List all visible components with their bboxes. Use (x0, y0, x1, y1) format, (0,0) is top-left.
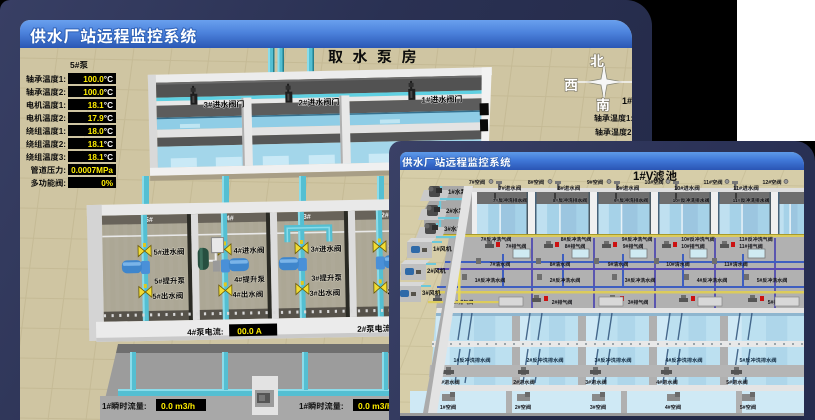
svg-text:7#: 7# (506, 244, 512, 250)
svg-text:2#: 2# (427, 269, 434, 275)
svg-text:10#: 10# (681, 237, 690, 243)
svg-text:1#: 1# (448, 190, 455, 196)
svg-text:4#: 4# (666, 358, 672, 364)
svg-text:2#: 2# (552, 300, 558, 306)
svg-text:11#: 11# (739, 244, 747, 250)
svg-text:2#: 2# (446, 209, 453, 215)
svg-text:7#: 7# (481, 237, 487, 243)
svg-text:10#: 10# (673, 198, 681, 204)
svg-text:4#: 4# (697, 278, 703, 284)
svg-text:7#: 7# (493, 198, 499, 204)
svg-text:11#: 11# (733, 186, 742, 192)
svg-text:9#: 9# (587, 180, 593, 186)
svg-text:7#: 7# (469, 180, 475, 186)
svg-text:10#: 10# (645, 180, 654, 186)
svg-text:1#: 1# (433, 247, 440, 253)
svg-text:9#: 9# (614, 198, 620, 204)
svg-text:8#: 8# (558, 186, 564, 192)
svg-text:9#: 9# (608, 262, 614, 268)
svg-text:3#: 3# (628, 300, 634, 306)
svg-text:4#: 4# (665, 405, 671, 411)
svg-text:9#: 9# (622, 237, 628, 243)
svg-text:1#: 1# (440, 405, 446, 411)
svg-text:5#: 5# (740, 358, 746, 364)
svg-text:11#: 11# (733, 198, 741, 204)
svg-text:3#: 3# (444, 227, 451, 233)
svg-text:11#: 11# (724, 262, 732, 268)
svg-text:11#: 11# (704, 180, 712, 186)
svg-text:7#: 7# (499, 186, 505, 192)
svg-text:2#: 2# (515, 405, 521, 411)
svg-text:3#: 3# (625, 278, 631, 284)
svg-text:9#: 9# (617, 186, 623, 192)
svg-text:10#: 10# (666, 262, 675, 268)
svg-text:8#: 8# (528, 180, 534, 186)
svg-text:8#: 8# (565, 244, 571, 250)
svg-text:11#: 11# (739, 237, 747, 243)
svg-text:3#: 3# (422, 291, 429, 297)
svg-text:7#: 7# (490, 262, 496, 268)
svg-text:12#: 12# (763, 180, 772, 186)
svg-text:1#: 1# (475, 278, 481, 284)
svg-text:5#: 5# (757, 278, 763, 284)
svg-text:8#: 8# (553, 198, 559, 204)
svg-text:1#: 1# (454, 358, 460, 364)
svg-text:9#: 9# (623, 244, 629, 250)
svg-text:3#: 3# (595, 358, 601, 364)
svg-text:5#: 5# (740, 405, 746, 411)
svg-text:2#: 2# (527, 358, 533, 364)
svg-text:5#: 5# (768, 300, 774, 306)
svg-text:10#: 10# (681, 244, 690, 250)
svg-text:8#: 8# (550, 262, 556, 268)
svg-text:2#: 2# (550, 278, 556, 284)
svg-text:3#: 3# (590, 405, 596, 411)
svg-text:10#: 10# (674, 186, 683, 192)
svg-text:8#: 8# (561, 237, 567, 243)
